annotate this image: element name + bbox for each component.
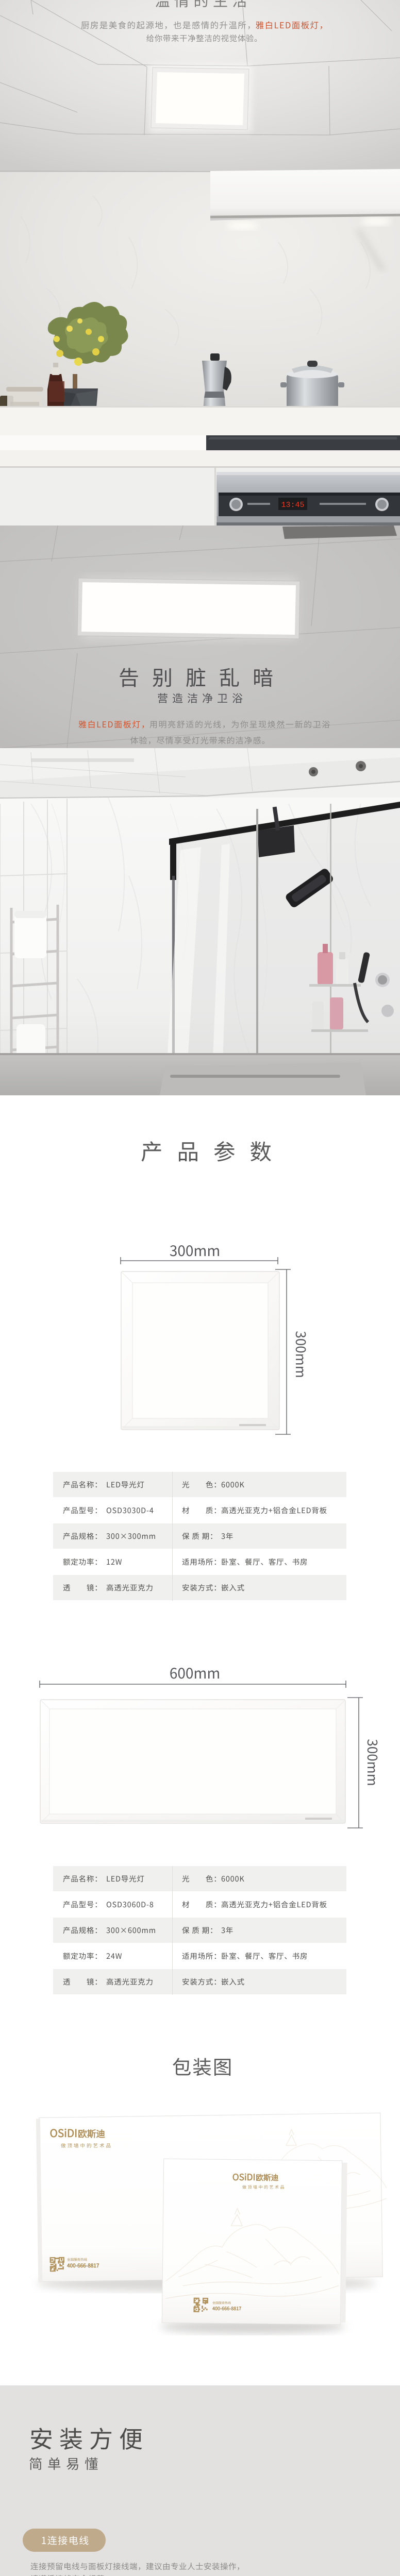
svg-text:13:45: 13:45: [281, 501, 304, 510]
